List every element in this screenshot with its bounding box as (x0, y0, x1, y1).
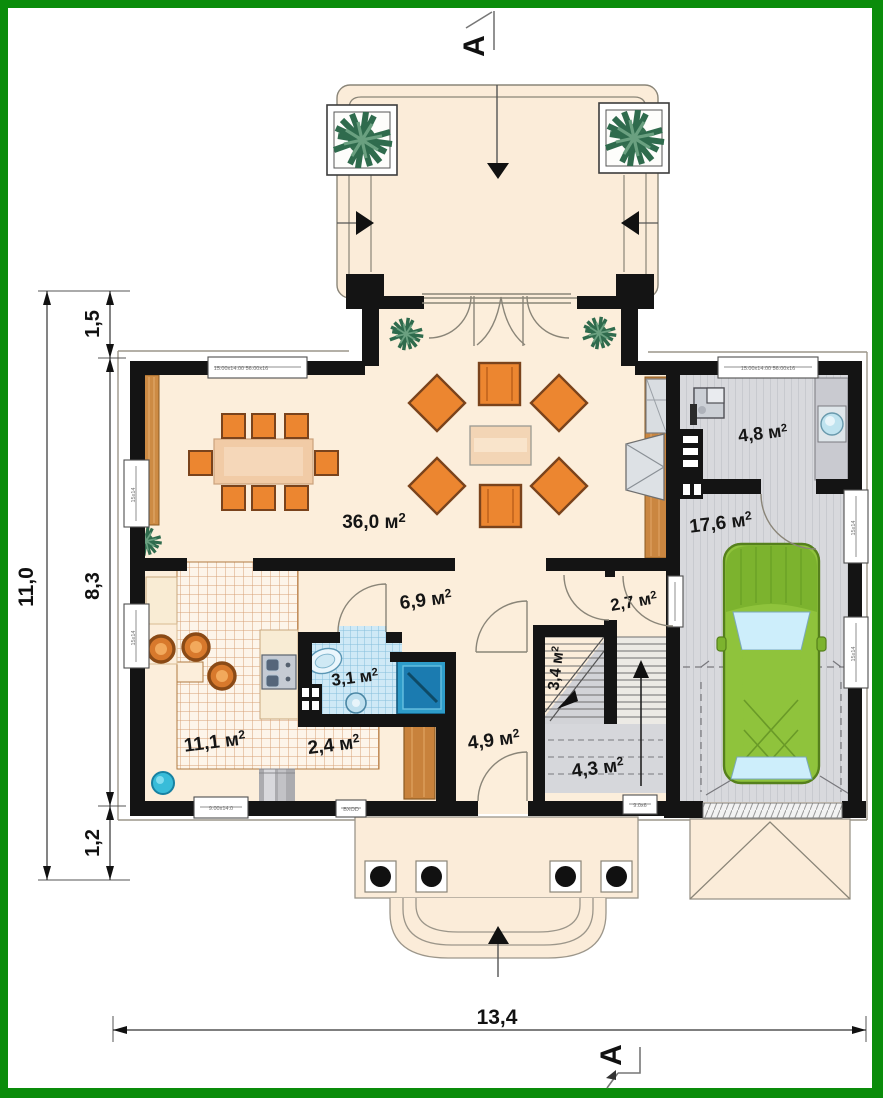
svg-text:15.00x14.00 56.00x16: 15.00x14.00 56.00x16 (214, 366, 268, 372)
svg-text:1,2: 1,2 (82, 829, 104, 857)
svg-text:1,5: 1,5 (82, 310, 104, 338)
svg-text:15x14: 15x14 (131, 488, 137, 503)
svg-text:15x14: 15x14 (851, 521, 857, 536)
svg-text:A: A (595, 1044, 628, 1066)
svg-text:A: A (458, 35, 491, 57)
svg-text:15x14: 15x14 (131, 631, 137, 646)
svg-text:BXOD: BXOD (343, 807, 359, 813)
svg-text:11,0: 11,0 (15, 567, 38, 607)
svg-text:15.00x14.00 56.00x16: 15.00x14.00 56.00x16 (741, 366, 795, 372)
svg-text:9.0x6: 9.0x6 (633, 803, 646, 809)
svg-text:9.00x14.0: 9.00x14.0 (209, 806, 233, 812)
svg-text:15x14: 15x14 (851, 647, 857, 662)
svg-text:36,0 м2: 36,0 м2 (342, 510, 406, 533)
svg-text:13,4: 13,4 (477, 1006, 518, 1029)
svg-text:8,3: 8,3 (82, 572, 104, 600)
